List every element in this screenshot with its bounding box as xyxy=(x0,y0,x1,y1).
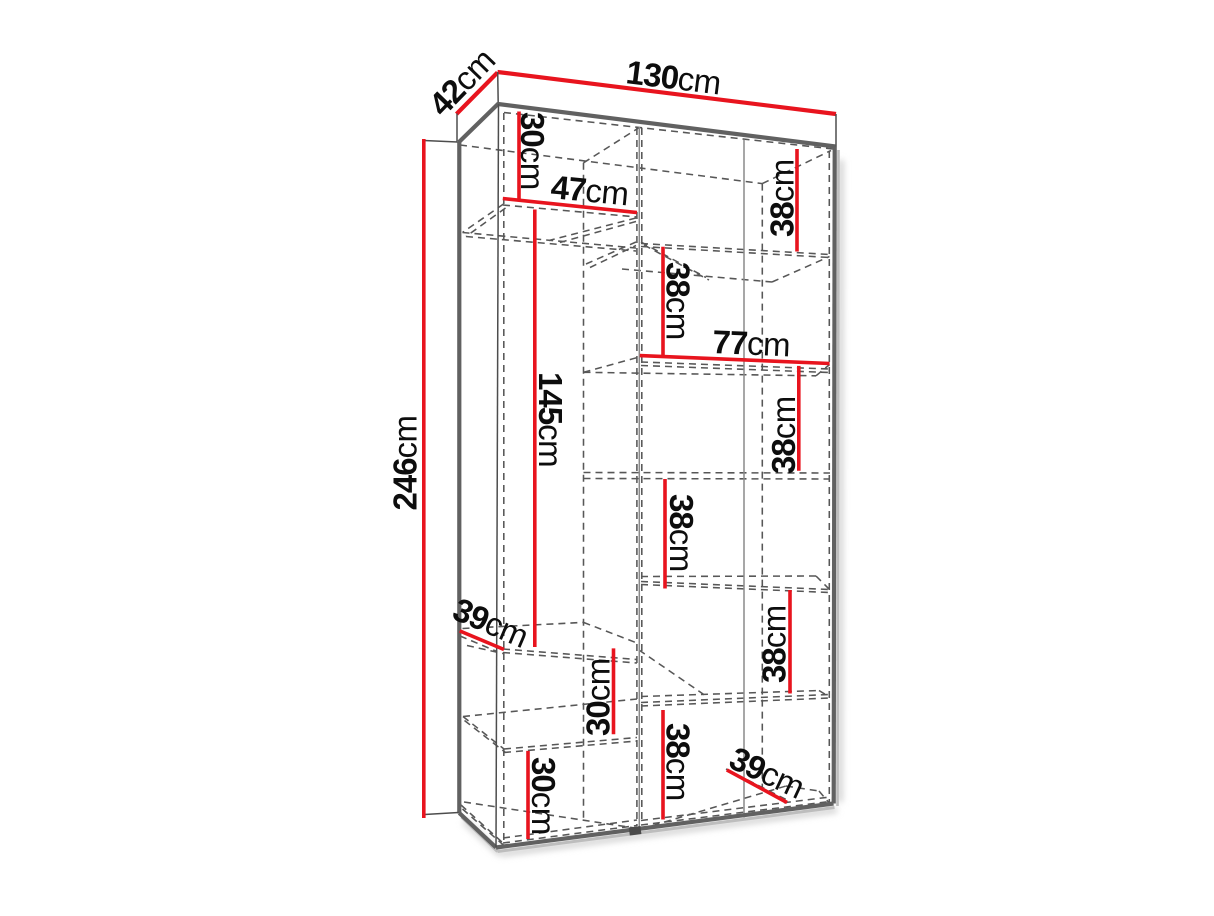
svg-text:47cm: 47cm xyxy=(549,168,630,212)
svg-text:30cm: 30cm xyxy=(525,757,562,835)
svg-text:38cm: 38cm xyxy=(663,494,700,572)
svg-text:77cm: 77cm xyxy=(712,323,791,363)
svg-text:38cm: 38cm xyxy=(660,262,697,340)
svg-text:30cm: 30cm xyxy=(580,658,617,736)
svg-text:30cm: 30cm xyxy=(514,112,551,190)
svg-text:145cm: 145cm xyxy=(532,372,569,467)
svg-text:38cm: 38cm xyxy=(765,396,802,474)
svg-text:38cm: 38cm xyxy=(660,723,697,801)
svg-text:38cm: 38cm xyxy=(756,605,793,683)
svg-text:38cm: 38cm xyxy=(764,159,801,237)
svg-text:246cm: 246cm xyxy=(387,415,424,510)
